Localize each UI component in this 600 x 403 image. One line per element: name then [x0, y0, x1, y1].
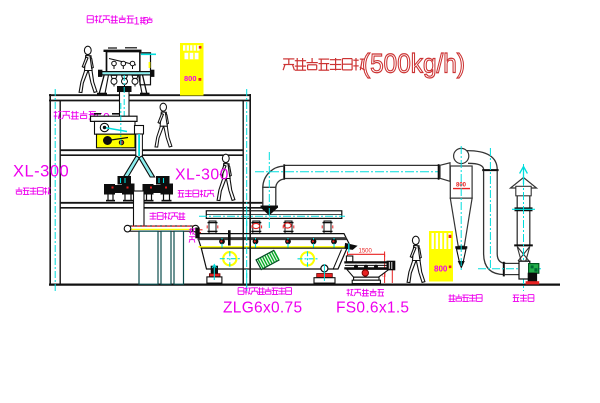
svg-text:800: 800: [434, 265, 448, 274]
svg-text:FS0.6x1.5: FS0.6x1.5: [336, 300, 409, 317]
svg-text:1500: 1500: [359, 249, 373, 255]
svg-text:ZLG6x0.75: ZLG6x0.75: [223, 300, 302, 317]
svg-text:800: 800: [184, 74, 197, 83]
svg-text:XL-300: XL-300: [175, 167, 229, 184]
svg-text:XL-300: XL-300: [13, 163, 69, 181]
svg-text:(500kg/h): (500kg/h): [362, 49, 465, 79]
